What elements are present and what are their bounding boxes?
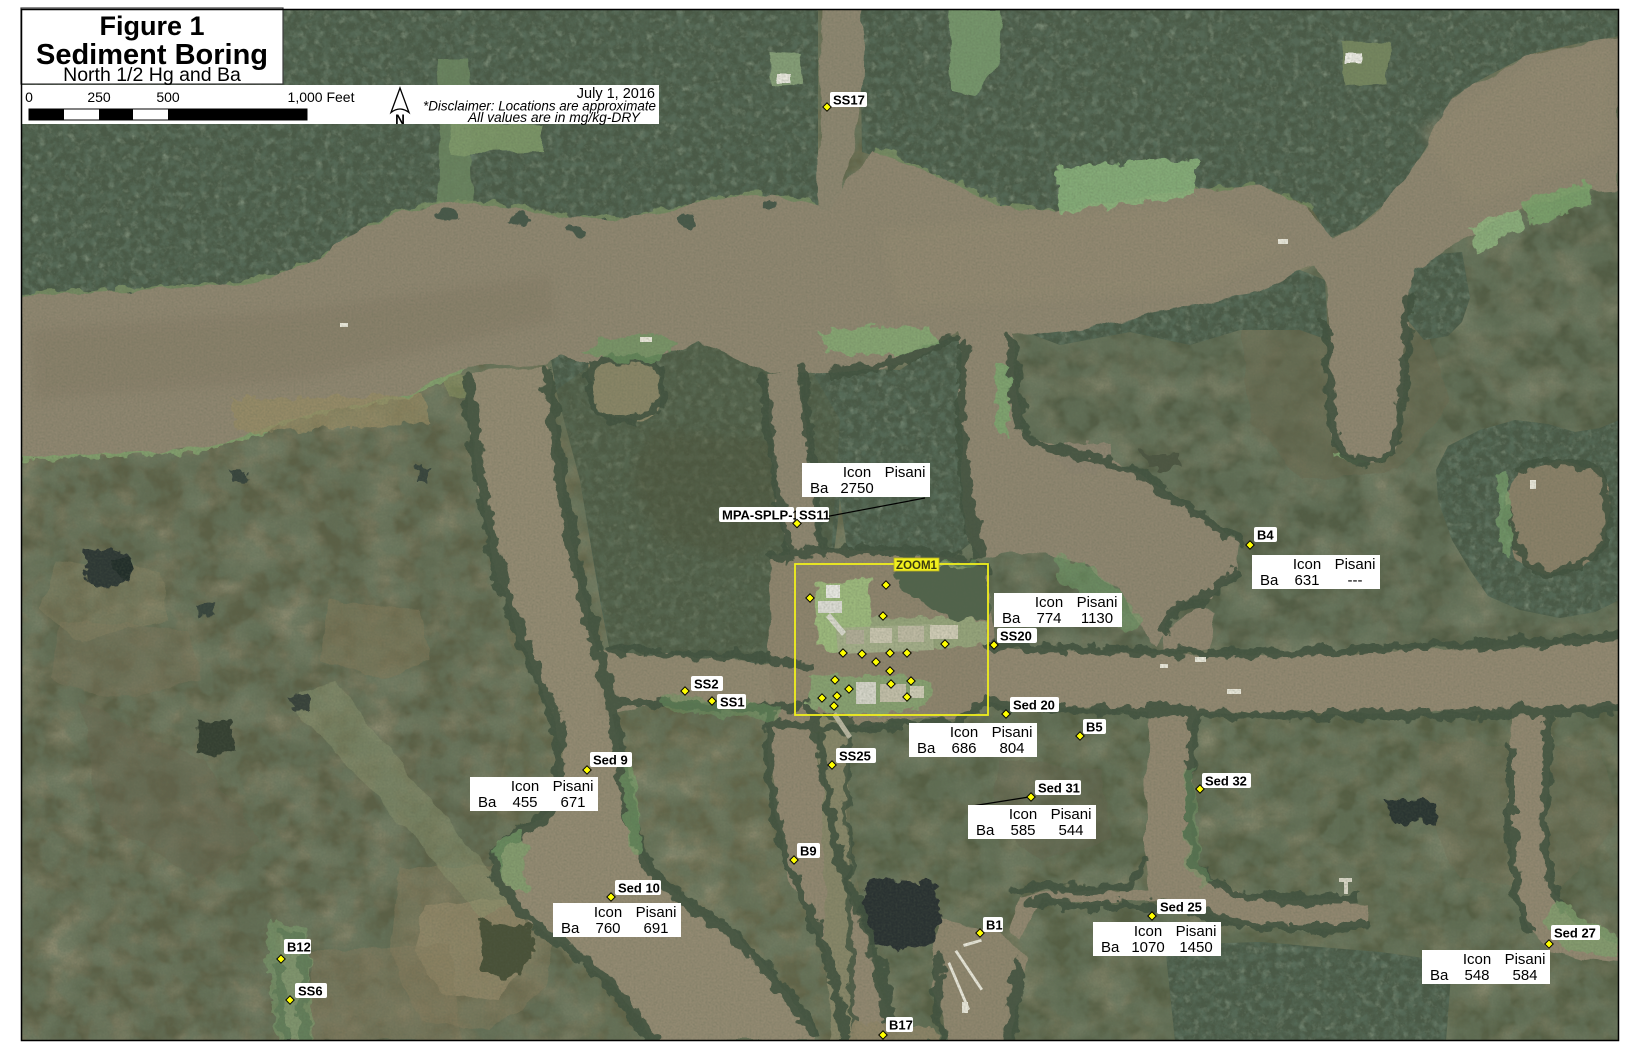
svg-text:Icon: Icon	[1134, 923, 1162, 940]
svg-text:SS11: SS11	[799, 508, 830, 523]
svg-text:Ba: Ba	[1260, 572, 1279, 589]
svg-text:Ba: Ba	[561, 920, 580, 937]
svg-text:Ba: Ba	[810, 480, 829, 497]
svg-text:MPA-SPLP-1: MPA-SPLP-1	[722, 508, 800, 523]
svg-text:SS25: SS25	[839, 749, 871, 764]
svg-text:1450: 1450	[1179, 939, 1212, 956]
svg-text:804: 804	[999, 740, 1024, 757]
svg-text:SS17: SS17	[833, 93, 865, 108]
svg-text:Ba: Ba	[1101, 939, 1120, 956]
svg-text:B1: B1	[986, 918, 1003, 933]
svg-text:Pisani: Pisani	[553, 778, 594, 795]
svg-text:Pisani: Pisani	[1176, 923, 1217, 940]
svg-text:631: 631	[1294, 572, 1319, 589]
svg-text:Icon: Icon	[594, 904, 622, 921]
svg-text:Ba: Ba	[478, 794, 497, 811]
svg-text:686: 686	[951, 740, 976, 757]
svg-text:Icon: Icon	[511, 778, 539, 795]
svg-text:B9: B9	[800, 844, 817, 859]
svg-text:Sed 27: Sed 27	[1554, 926, 1596, 941]
svg-text:Sed 10: Sed 10	[618, 881, 660, 896]
svg-text:Ba: Ba	[976, 822, 995, 839]
svg-text:774: 774	[1036, 610, 1061, 627]
svg-text:Sed 9: Sed 9	[593, 753, 628, 768]
svg-text:544: 544	[1058, 822, 1083, 839]
svg-text:Pisani: Pisani	[636, 904, 677, 921]
svg-text:N: N	[395, 112, 405, 127]
svg-text:SS1: SS1	[720, 695, 745, 710]
svg-text:Ba: Ba	[1002, 610, 1021, 627]
svg-text:Pisani: Pisani	[1505, 951, 1546, 968]
svg-text:Figure 1: Figure 1	[99, 11, 204, 41]
svg-text:Pisani: Pisani	[1077, 594, 1118, 611]
svg-text:Icon: Icon	[1293, 556, 1321, 573]
svg-text:Icon: Icon	[1009, 806, 1037, 823]
svg-text:Icon: Icon	[1463, 951, 1491, 968]
svg-text:250: 250	[87, 89, 111, 105]
svg-text:2750: 2750	[840, 480, 873, 497]
svg-text:Pisani: Pisani	[992, 724, 1033, 741]
svg-text:Sed 31: Sed 31	[1038, 781, 1080, 796]
svg-text:Icon: Icon	[1035, 594, 1063, 611]
svg-text:760: 760	[595, 920, 620, 937]
svg-text:B12: B12	[287, 940, 311, 955]
svg-text:SS6: SS6	[298, 984, 323, 999]
svg-text:1070: 1070	[1131, 939, 1164, 956]
svg-text:Icon: Icon	[843, 464, 871, 481]
svg-text:Pisani: Pisani	[1051, 806, 1092, 823]
svg-text:Icon: Icon	[950, 724, 978, 741]
svg-text:North 1/2 Hg and Ba: North 1/2 Hg and Ba	[63, 64, 241, 86]
svg-text:691: 691	[643, 920, 668, 937]
svg-text:B17: B17	[889, 1018, 913, 1033]
svg-text:Ba: Ba	[917, 740, 936, 757]
svg-text:0: 0	[25, 89, 33, 105]
svg-text:SS20: SS20	[1000, 629, 1032, 644]
svg-text:B4: B4	[1257, 528, 1274, 543]
svg-text:585: 585	[1010, 822, 1035, 839]
svg-text:B5: B5	[1086, 720, 1103, 735]
svg-text:584: 584	[1512, 967, 1537, 984]
svg-text:All values are in mg/kg-DRY: All values are in mg/kg-DRY	[467, 110, 642, 125]
svg-text:500: 500	[156, 89, 180, 105]
svg-text:Pisani: Pisani	[885, 464, 926, 481]
svg-text:SS2: SS2	[694, 677, 719, 692]
svg-text:Ba: Ba	[1430, 967, 1449, 984]
svg-text:1130: 1130	[1081, 610, 1113, 627]
svg-text:1,000 Feet: 1,000 Feet	[288, 89, 355, 105]
svg-text:---: ---	[1348, 572, 1363, 589]
svg-text:ZOOM1: ZOOM1	[896, 560, 937, 572]
svg-text:Sed 20: Sed 20	[1013, 698, 1055, 713]
svg-text:671: 671	[560, 794, 585, 811]
svg-text:Sed 32: Sed 32	[1205, 774, 1247, 789]
svg-text:Sed 25: Sed 25	[1160, 900, 1202, 915]
svg-text:Pisani: Pisani	[1335, 556, 1376, 573]
svg-text:548: 548	[1464, 967, 1489, 984]
svg-text:455: 455	[512, 794, 537, 811]
